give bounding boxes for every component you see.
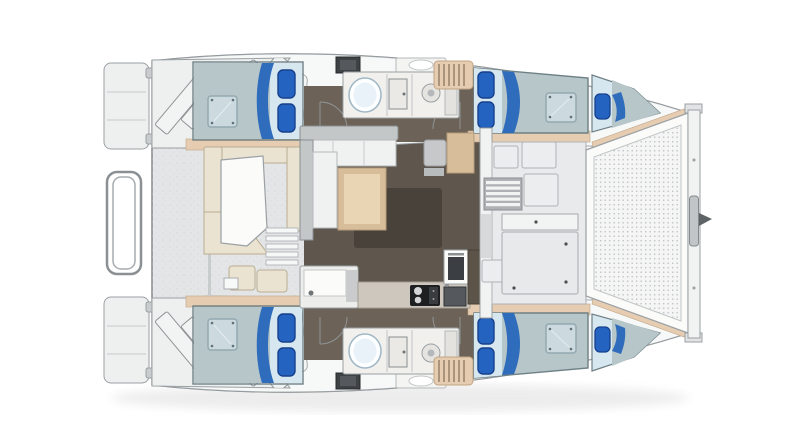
aft-step-pad (224, 278, 238, 289)
nav-seat (424, 140, 446, 166)
bow-crossbeam (685, 104, 712, 342)
cockpit-table (221, 156, 267, 246)
oven (444, 250, 469, 284)
anchor-roller (699, 213, 712, 226)
tender-rail (107, 172, 141, 274)
cooktop (410, 285, 440, 306)
floor-plan-drawing (0, 0, 800, 446)
deck-panel (522, 142, 556, 168)
bowsprit-fitting (690, 196, 699, 246)
deck-panel (494, 146, 518, 168)
island-faucet (309, 291, 314, 296)
nav-table (447, 133, 474, 173)
saloon-table (338, 168, 386, 230)
boat (104, 53, 712, 392)
deck-panel (482, 260, 504, 282)
nav-step (424, 168, 444, 176)
foredeck-door (481, 214, 491, 258)
deck-panel (524, 174, 558, 206)
aft-seat-module (257, 270, 287, 292)
catamaran-floor-plan (0, 0, 800, 446)
galley-island (300, 266, 358, 308)
louvered-vent (484, 178, 522, 210)
starboard-hull (104, 295, 687, 393)
trampoline (586, 113, 688, 333)
foredeck-hatch (502, 214, 578, 294)
saloon-forward-bulkhead (480, 128, 492, 318)
foredeck (482, 142, 592, 304)
trampoline-mesh (594, 125, 681, 321)
